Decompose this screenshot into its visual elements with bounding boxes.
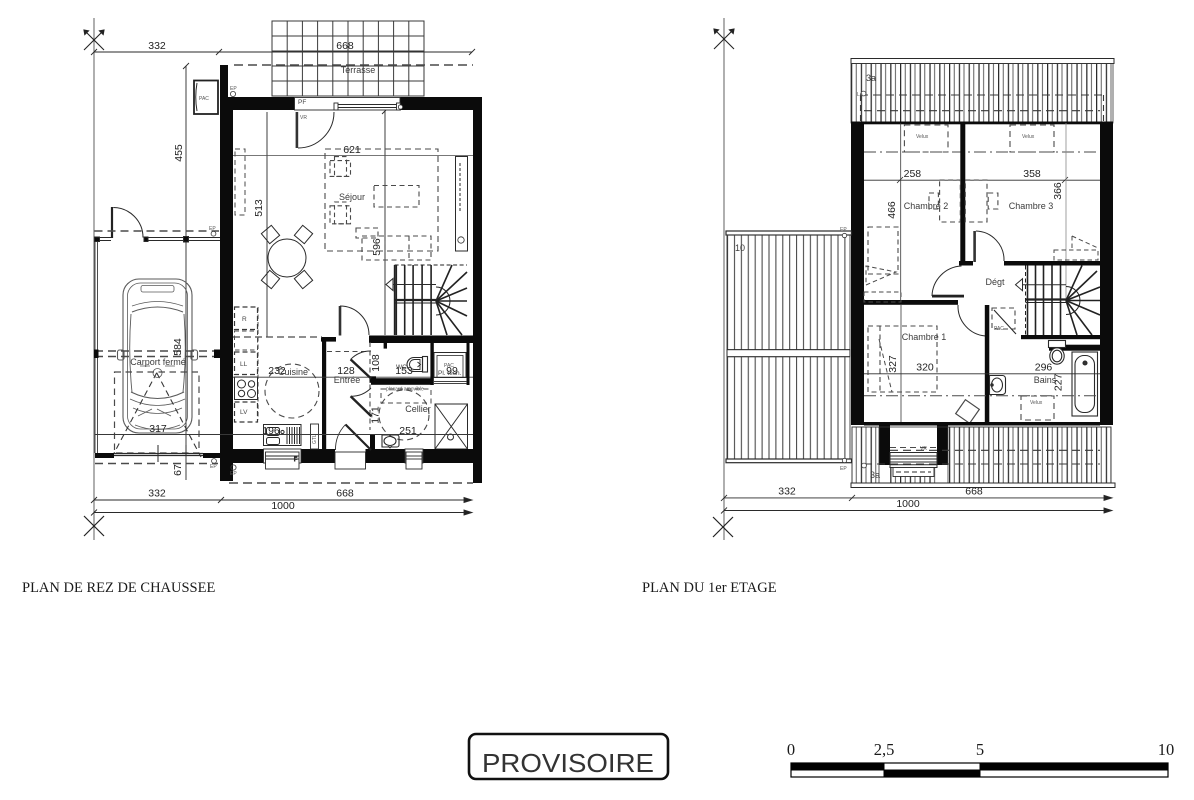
- svg-text:Velux: Velux: [916, 134, 929, 140]
- svg-text:WC: WC: [396, 364, 407, 371]
- svg-text:1000: 1000: [896, 498, 920, 510]
- svg-text:EP: EP: [210, 464, 217, 470]
- svg-text:Dégt: Dégt: [985, 277, 1005, 287]
- svg-text:3a: 3a: [870, 470, 880, 480]
- svg-text:LL: LL: [240, 361, 248, 368]
- svg-text:Entrée: Entrée: [334, 375, 361, 385]
- svg-text:PF: PF: [298, 99, 306, 106]
- svg-text:232: 232: [268, 365, 286, 377]
- svg-text:EP: EP: [840, 227, 847, 233]
- svg-text:Velux: Velux: [1030, 400, 1043, 406]
- svg-text:EP: EP: [840, 466, 847, 472]
- svg-text:Velux: Velux: [1022, 134, 1035, 140]
- svg-text:Chambre 2: Chambre 2: [904, 201, 949, 211]
- svg-text:3a: 3a: [866, 73, 876, 83]
- svg-text:Chambre 3: Chambre 3: [1009, 201, 1054, 211]
- svg-text:1000: 1000: [271, 500, 295, 512]
- svg-text:327: 327: [887, 355, 899, 373]
- svg-text:Carport fermé: Carport fermé: [130, 357, 186, 367]
- svg-text:5: 5: [976, 740, 984, 759]
- svg-text:F: F: [294, 457, 297, 463]
- svg-text:LV: LV: [240, 409, 248, 416]
- svg-text:227: 227: [1053, 373, 1065, 391]
- svg-text:668: 668: [965, 486, 983, 498]
- svg-text:PLAN DE REZ DE CHAUSSEE: PLAN DE REZ DE CHAUSSEE: [22, 580, 215, 596]
- svg-text:Pl. tech.: Pl. tech.: [438, 370, 462, 377]
- svg-text:EP: EP: [209, 226, 216, 232]
- svg-text:320: 320: [916, 362, 934, 374]
- svg-text:332: 332: [148, 40, 166, 52]
- svg-text:VR: VR: [300, 115, 307, 121]
- svg-text:358: 358: [1023, 168, 1041, 180]
- svg-text:Séjour: Séjour: [339, 192, 365, 202]
- svg-text:513: 513: [253, 199, 265, 217]
- svg-text:621: 621: [343, 144, 361, 156]
- svg-text:EP: EP: [230, 471, 237, 477]
- svg-text:R: R: [242, 316, 247, 323]
- svg-text:317: 317: [149, 423, 167, 435]
- svg-text:VR: VR: [920, 446, 927, 452]
- svg-text:332: 332: [148, 488, 166, 500]
- svg-text:2,5: 2,5: [874, 740, 895, 759]
- svg-text:placard amovible: placard amovible: [386, 387, 424, 393]
- svg-text:Cellier: Cellier: [405, 404, 431, 414]
- svg-text:258: 258: [904, 168, 922, 180]
- svg-text:108: 108: [370, 354, 382, 372]
- svg-text:PAC: PAC: [199, 96, 209, 102]
- svg-text:10: 10: [735, 243, 745, 253]
- svg-text:366: 366: [1052, 182, 1064, 200]
- svg-text:PAC: PAC: [444, 363, 454, 369]
- svg-text:GTL: GTL: [312, 434, 318, 444]
- svg-text:584: 584: [172, 338, 184, 356]
- svg-text:67: 67: [172, 464, 184, 476]
- svg-text:196: 196: [262, 425, 280, 437]
- svg-text:332: 332: [778, 486, 796, 498]
- svg-text:466: 466: [886, 201, 898, 219]
- svg-text:Chambre 1: Chambre 1: [902, 332, 947, 342]
- svg-text:PLAN DU 1er ETAGE: PLAN DU 1er ETAGE: [642, 580, 777, 596]
- svg-text:296: 296: [1035, 362, 1053, 374]
- svg-text:Lo: Lo: [857, 92, 863, 98]
- svg-text:Terrasse: Terrasse: [341, 65, 376, 75]
- svg-text:251: 251: [399, 425, 417, 437]
- svg-text:668: 668: [336, 488, 354, 500]
- svg-text:PAC: PAC: [994, 326, 1004, 332]
- svg-text:596: 596: [371, 238, 383, 256]
- svg-text:455: 455: [173, 144, 185, 162]
- svg-text:PROVISOIRE: PROVISOIRE: [482, 748, 654, 778]
- svg-text:EP: EP: [230, 86, 237, 92]
- svg-text:10: 10: [1158, 740, 1175, 759]
- svg-text:0: 0: [787, 740, 795, 759]
